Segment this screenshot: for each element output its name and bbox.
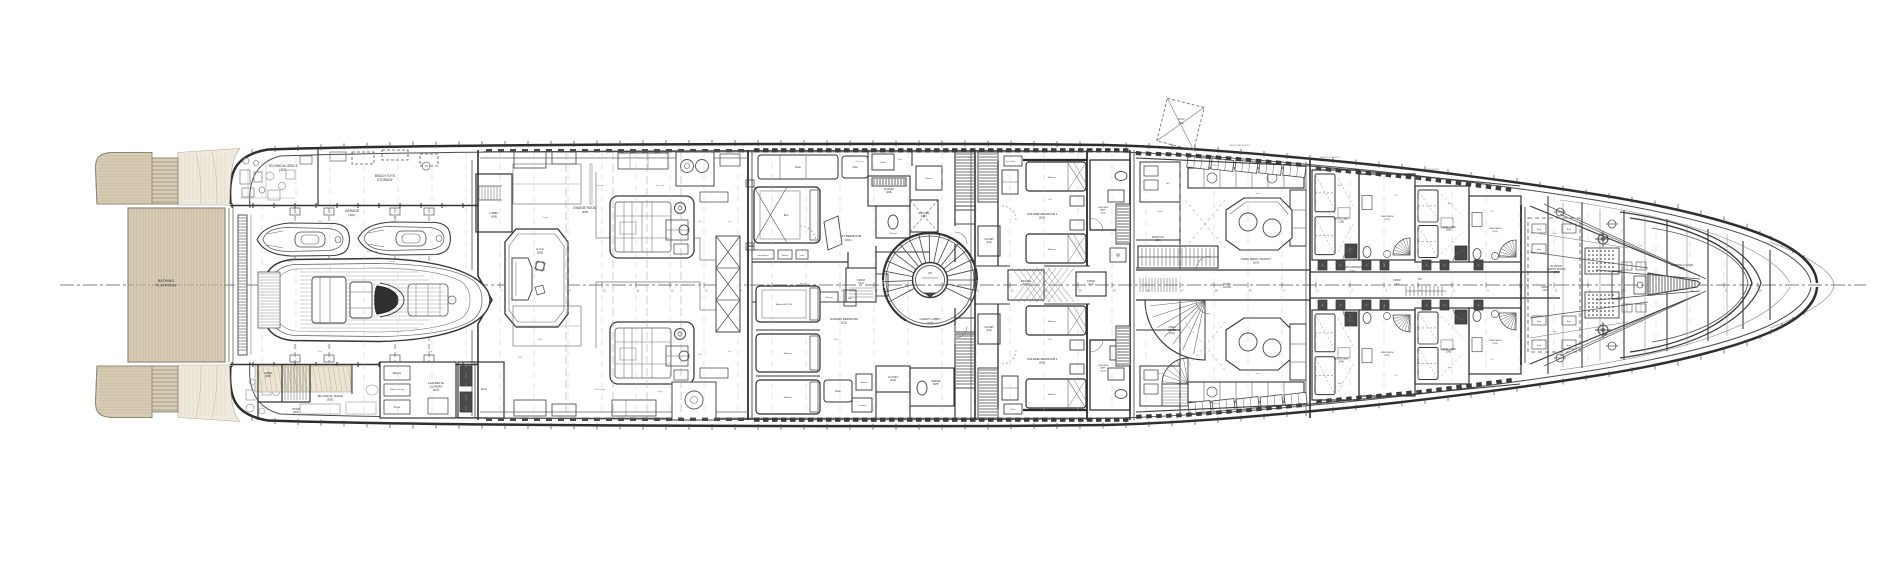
svg-text:FROM ULD: FROM ULD: [1152, 237, 1164, 239]
svg-text:Rack: Rack: [1537, 249, 1541, 251]
svg-text:CREW CABIN: CREW CABIN: [1441, 226, 1456, 229]
svg-text:(205): (205): [926, 321, 933, 325]
svg-text:(212): (212): [986, 241, 992, 244]
svg-text:ULD: ULD: [1088, 282, 1093, 286]
svg-text:NURSES: NURSES: [931, 381, 941, 383]
svg-text:Sofa: Sofa: [853, 166, 859, 169]
svg-text:WC: WC: [1490, 211, 1494, 213]
svg-text:CHILDREN BEDROOM 1: CHILDREN BEDROOM 1: [1027, 212, 1058, 216]
svg-text:(240): (240): [1446, 230, 1452, 232]
svg-text:WC: WC: [1490, 359, 1494, 361]
svg-text:Tools: Tools: [538, 339, 543, 341]
svg-text:Rack: Rack: [1537, 229, 1541, 231]
svg-text:CREW BATH: CREW BATH: [1381, 351, 1394, 354]
svg-text:Gen: Gen: [698, 354, 702, 356]
svg-text:(204): (204): [886, 190, 892, 194]
svg-text:(204): (204): [1101, 212, 1106, 214]
svg-text:Stool: Stool: [881, 161, 887, 164]
svg-text:CHILDREN BEDROOM 2: CHILDREN BEDROOM 2: [1027, 357, 1058, 361]
svg-text:(218): (218): [1338, 221, 1344, 223]
svg-text:EXIT: EXIT: [1023, 282, 1029, 286]
svg-text:Washer: Washer: [393, 371, 402, 375]
svg-text:Bath root: Bath root: [825, 296, 833, 299]
svg-text:Laundry: Laundry: [858, 405, 865, 407]
svg-text:Gen: Gen: [698, 221, 702, 223]
svg-text:(242): (242): [1446, 352, 1452, 354]
svg-text:Mattress: Mattress: [1048, 320, 1057, 323]
svg-text:Mattress: Mattress: [1048, 248, 1057, 251]
svg-text:Bob bed 80 X 190: Bob bed 80 X 190: [776, 304, 793, 306]
svg-text:Jet ski: Jet ski: [287, 260, 293, 263]
svg-text:(206): (206): [1039, 360, 1045, 364]
svg-text:CREW CABIN: CREW CABIN: [1334, 358, 1349, 361]
svg-text:CREW BATH: CREW BATH: [1381, 215, 1394, 218]
svg-text:STORAGE: STORAGE: [377, 178, 393, 182]
svg-text:Desk: Desk: [835, 390, 841, 393]
svg-text:CREW CABIN: CREW CABIN: [1441, 348, 1456, 351]
svg-text:Rack: Rack: [1553, 233, 1558, 235]
svg-text:Esc: Esc: [728, 351, 731, 353]
svg-text:Robe: Robe: [848, 298, 852, 300]
svg-text:Shelves: Shelves: [782, 255, 788, 257]
svg-text:Bunk: Bunk: [1448, 203, 1453, 205]
svg-text:Long Drawers: Long Drawers: [757, 255, 768, 257]
svg-text:Sink: Sink: [1256, 373, 1260, 375]
svg-text:BLWK TOP FROM P.L.: BLWK TOP FROM P.L.: [1420, 169, 1441, 171]
svg-text:Shower: Shower: [925, 177, 933, 180]
svg-text:W/B: W/B: [518, 357, 522, 359]
svg-text:(308): (308): [582, 210, 589, 214]
svg-text:Freezer: Freezer: [1157, 373, 1164, 375]
svg-text:Esc: Esc: [728, 221, 731, 223]
svg-text:BATHING: BATHING: [158, 279, 175, 283]
svg-text:ULD: ULD: [858, 281, 863, 285]
svg-text:Bunk: Bunk: [1448, 367, 1453, 369]
svg-text:CROW: CROW: [1177, 118, 1185, 121]
svg-text:CREW BATH: CREW BATH: [1489, 227, 1502, 230]
svg-text:Drawers: Drawers: [856, 161, 863, 163]
svg-text:(241): (241): [1492, 231, 1497, 233]
svg-text:UP: UP: [928, 271, 932, 275]
svg-text:SIDE: SIDE: [1178, 122, 1184, 125]
svg-text:Rail: Rail: [428, 351, 432, 353]
svg-text:(288): (288): [1679, 267, 1685, 270]
svg-text:(207): (207): [1253, 261, 1260, 265]
svg-text:(307): (307): [433, 388, 440, 392]
svg-text:Shelf: Shelf: [800, 283, 805, 285]
svg-text:Bunk: Bunk: [1338, 383, 1343, 385]
svg-text:Counter: Counter: [1212, 402, 1219, 405]
svg-text:Vent: Vent: [518, 228, 522, 231]
svg-text:Rack: Rack: [1537, 345, 1541, 347]
svg-text:(205): (205): [1039, 215, 1045, 219]
svg-text:Rail: Rail: [318, 351, 322, 353]
svg-text:Mattress: Mattress: [1048, 176, 1057, 179]
svg-text:Desk: Desk: [1011, 161, 1016, 163]
svg-text:CREW BATH: CREW BATH: [1489, 339, 1502, 342]
svg-text:Rack: Rack: [1567, 229, 1571, 231]
svg-text:(305): (305): [265, 374, 271, 378]
svg-text:BATH: BATH: [933, 383, 939, 386]
svg-text:WC: WC: [1394, 375, 1398, 377]
svg-text:Pump: Pump: [542, 217, 548, 219]
svg-text:Entry: Entry: [481, 387, 488, 391]
svg-text:T: T: [1121, 177, 1122, 179]
svg-text:CHILDREN: CHILDREN: [1098, 207, 1109, 209]
svg-text:Bunk: Bunk: [1338, 185, 1343, 187]
svg-text:Bunk: Bunk: [1006, 161, 1011, 163]
svg-text:Bett: Bett: [784, 214, 789, 217]
svg-text:CREW CABIN: CREW CABIN: [1334, 218, 1349, 221]
svg-text:BATH: BATH: [1100, 367, 1106, 370]
svg-text:(302): (302): [279, 168, 286, 172]
svg-text:(245): (245): [1384, 355, 1389, 357]
svg-text:ULD: ULD: [1542, 289, 1547, 292]
svg-text:(244): (244): [1338, 361, 1344, 363]
svg-text:(213): (213): [890, 378, 896, 382]
svg-text:DECK LINE FROM P.L.: DECK LINE FROM P.L.: [1230, 145, 1251, 147]
svg-text:Dryer: Dryer: [394, 405, 400, 409]
svg-text:Shower: Shower: [861, 382, 868, 384]
svg-text:Fuel tank: Fuel tank: [656, 184, 664, 187]
svg-text:BATH: BATH: [1100, 209, 1106, 212]
svg-text:Fridge: Fridge: [1157, 211, 1164, 213]
svg-text:WC: WC: [1166, 183, 1170, 185]
svg-text:(215): (215): [1169, 332, 1175, 335]
svg-text:Rail: Rail: [318, 221, 322, 223]
svg-text:(201): (201): [844, 238, 851, 242]
svg-text:Fuel tank: Fuel tank: [596, 184, 604, 187]
svg-text:UP: UP: [1418, 278, 1422, 281]
svg-text:Rack: Rack: [1537, 321, 1541, 323]
svg-text:(211): (211): [841, 321, 848, 325]
svg-text:Mattress: Mattress: [1048, 393, 1057, 396]
svg-text:Rail: Rail: [393, 217, 397, 219]
svg-text:Fresh water: Fresh water: [595, 388, 606, 391]
svg-text:Tender 8.5m: Tender 8.5m: [366, 251, 377, 253]
svg-text:(203): (203): [1101, 370, 1106, 372]
svg-text:Shower: Shower: [889, 232, 897, 235]
svg-text:Jet ski: Jet ski: [389, 260, 395, 263]
svg-text:(306): (306): [491, 214, 497, 218]
svg-text:Desk: Desk: [1011, 409, 1016, 411]
svg-text:Shelves on top: Shelves on top: [390, 388, 405, 391]
svg-text:(219): (219): [1384, 219, 1389, 221]
svg-text:(213): (213): [986, 329, 992, 332]
svg-text:CHILDREN: CHILDREN: [1098, 365, 1109, 367]
svg-text:(309): (309): [537, 250, 543, 254]
svg-text:Linen: Linen: [800, 255, 804, 257]
svg-text:ULD: ULD: [1395, 283, 1400, 286]
svg-text:Rack: Rack: [1567, 321, 1571, 323]
svg-text:Desk: Desk: [795, 166, 801, 169]
svg-text:DOOR: DOOR: [1223, 286, 1231, 289]
svg-text:FROM: FROM: [1393, 279, 1400, 282]
svg-text:Sink: Sink: [1256, 193, 1260, 195]
svg-text:Chain: Chain: [1637, 321, 1642, 323]
svg-text:Mattress: Mattress: [784, 352, 793, 355]
svg-text:(243): (243): [1492, 343, 1497, 345]
svg-text:Counter: Counter: [1212, 164, 1219, 167]
svg-text:Chain: Chain: [1637, 245, 1642, 247]
svg-text:Pump: Pump: [657, 391, 663, 393]
svg-text:WC: WC: [1394, 195, 1398, 197]
svg-text:Mattress: Mattress: [784, 396, 793, 399]
svg-text:(301): (301): [348, 213, 355, 217]
svg-text:PLATFORM: PLATFORM: [156, 284, 176, 288]
svg-text:Rack: Rack: [1553, 331, 1558, 333]
svg-text:SIDE DECK FROM P.L.: SIDE DECK FROM P.L.: [1319, 157, 1341, 159]
